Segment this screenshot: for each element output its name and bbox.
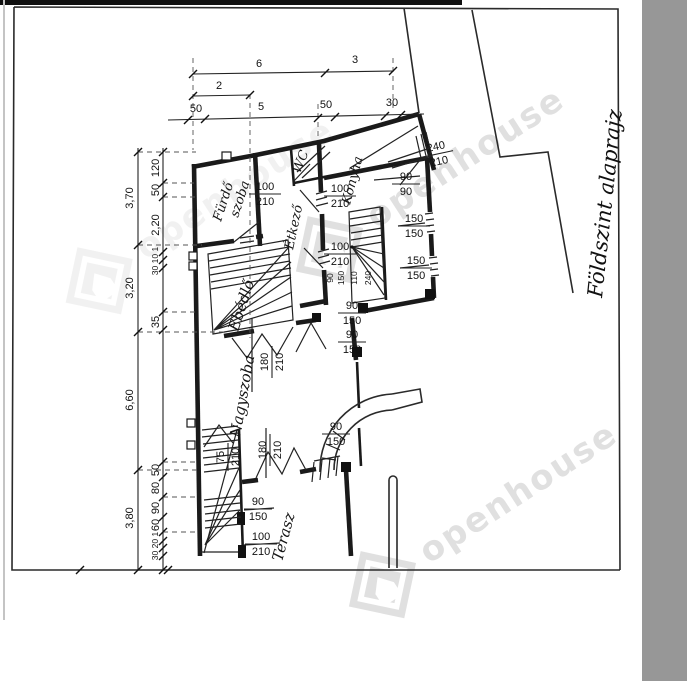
dim-frac-den: 210: [274, 353, 286, 371]
floor-plan-svg: openhouse openhouse openhouse: [0, 0, 687, 681]
dim-top-30: 30: [386, 97, 398, 109]
dim-frac-num: 180: [257, 441, 269, 459]
dim-top-3: 3: [352, 54, 358, 66]
dim-frac-num: 150: [405, 213, 423, 225]
dim-frac-num: 180: [259, 353, 271, 371]
dim-top-5: 5: [258, 101, 264, 113]
dim-frac-num: 100: [331, 241, 349, 253]
dim-frac-num: 150: [407, 255, 425, 267]
dim-inner-60: 60: [150, 519, 162, 531]
dim-frac-den: 150: [407, 270, 425, 282]
dim-frac-num: 90: [400, 171, 412, 183]
dim-frac-num: 90: [346, 329, 358, 341]
dim-inner-50: 50: [150, 184, 162, 196]
dim-inner-50b: 50: [150, 464, 162, 476]
dim-inner-30101: 30 10 1: [150, 247, 160, 276]
dim-frac-den: 150: [343, 315, 361, 327]
scanner-gray-band: [642, 0, 687, 681]
scan-top-black-bar: [0, 0, 462, 5]
dim-inner-220: 2,20: [150, 214, 162, 235]
dim-left-320: 3,20: [124, 277, 136, 298]
dim-frac-den: 150: [405, 228, 423, 240]
paper-background: [0, 0, 687, 681]
scanned-floor-plan-page: openhouse openhouse openhouse: [0, 0, 687, 681]
dim-top-50b: 50: [320, 99, 332, 111]
dim-frac-num: 75: [215, 451, 227, 463]
dim-frac-num: 90: [252, 496, 264, 508]
dim-chain-240: 240: [363, 271, 373, 285]
dim-frac-den: 210: [230, 448, 242, 466]
dim-frac-num: 90: [330, 421, 342, 433]
dim-frac-num: 90: [346, 300, 358, 312]
dim-frac-den: 150: [343, 344, 361, 356]
dim-inner-90: 90: [150, 502, 162, 514]
dim-inner-80: 80: [150, 482, 162, 494]
dim-left-660: 6,60: [124, 389, 136, 410]
dim-top-2: 2: [216, 80, 222, 92]
dim-frac-den: 150: [327, 436, 345, 448]
dim-chain-150: 150: [336, 271, 346, 285]
dim-top-50a: 50: [190, 103, 202, 115]
dim-frac-den: 210: [272, 441, 284, 459]
dim-left-370: 3,70: [124, 187, 136, 208]
dim-inner-35: 35: [150, 316, 162, 328]
dim-frac-num: 100: [252, 531, 270, 543]
dim-chain-90: 90: [325, 273, 335, 283]
dim-frac-den: 150: [249, 511, 267, 523]
dim-left-380: 3,80: [124, 507, 136, 528]
dim-inner-120: 120: [150, 159, 162, 177]
dim-frac-den: 210: [331, 256, 349, 268]
dim-inner-30201: 30 20 1: [150, 532, 160, 561]
dim-chain-110: 110: [349, 271, 359, 285]
dim-frac-num: 100: [256, 181, 274, 193]
dim-frac-den: 210: [252, 546, 270, 558]
dim-frac-den: 210: [256, 196, 274, 208]
dim-frac-den: 90: [400, 186, 412, 198]
dim-top-6: 6: [256, 58, 262, 70]
